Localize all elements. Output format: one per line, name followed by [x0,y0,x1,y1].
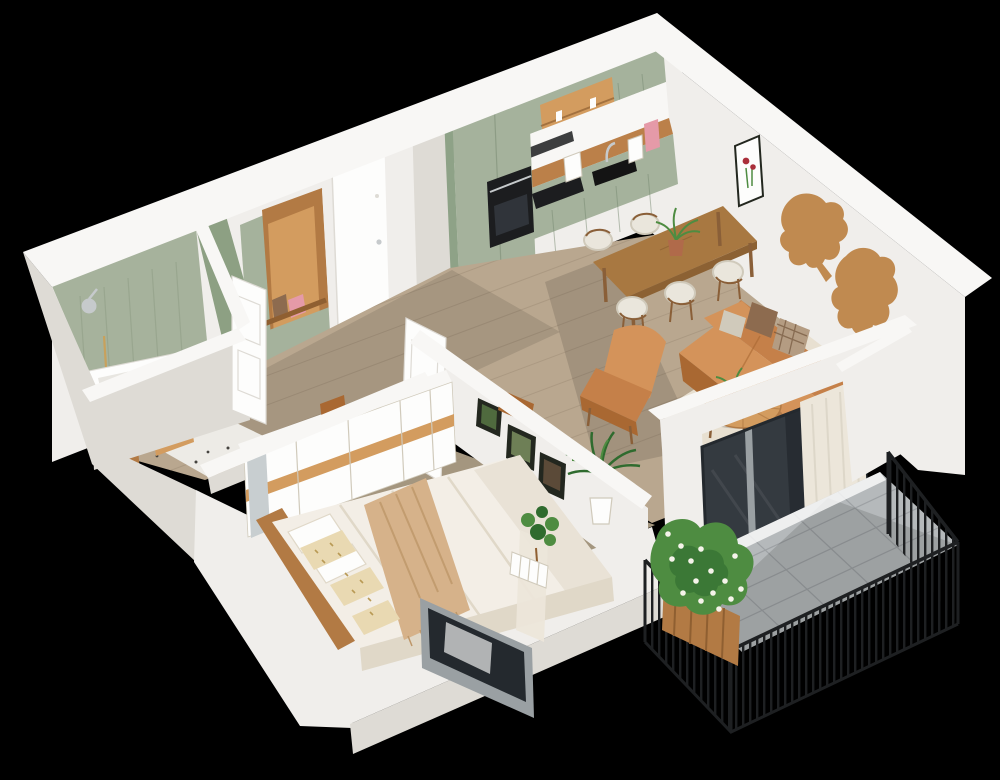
wardrobe-top-face [238,370,452,456]
chair-seat [631,214,659,234]
coffee-plant-pot [729,392,742,402]
daisy [669,556,675,562]
daisy-planter [650,519,753,666]
tile-lines [676,487,940,632]
kettle [628,135,643,163]
sliding-glass-door [702,385,868,588]
entry-wall-segment [322,179,356,332]
plant-leaves [656,208,700,240]
white-pillow-1 [288,514,344,553]
sofa-chaise [806,420,876,479]
dining-table-edge [627,241,757,305]
palm-fronds-light [572,440,608,474]
sofa-back [719,300,868,420]
daisy [722,578,728,584]
bathroom-wall-tile-lines [80,262,184,418]
gallery-photo-3 [543,459,561,491]
daisy [688,558,694,564]
base-cabinets [461,134,678,265]
built-in-oven [487,166,534,248]
bedroom-west-outer-wall [194,490,360,728]
back-walls [52,35,965,475]
patterned-pillow-3 [352,600,400,635]
balcony-shadow [706,498,958,652]
tall-cabinet-split [494,98,502,290]
balcony-doorway [660,324,922,604]
daisy [716,606,722,612]
dining-chair-front-1 [617,297,647,337]
gallery-frame-3 [538,452,566,500]
leather-sofa [679,300,878,498]
pillar-left-face [384,118,418,342]
speckle [149,431,152,434]
niche-green-base [264,306,336,382]
railing-panel-left [645,560,731,732]
outer-walls [23,252,671,754]
dining-chair-front-2 [665,282,695,322]
curtain-folds [812,386,860,528]
duvet-folds [340,477,536,630]
bedroom-floor [246,450,655,645]
gallery-frame-2 [506,424,536,471]
crate-slats [674,586,724,658]
bathroom-front-wall-top [82,328,246,402]
west-outer-wall [23,252,200,562]
main-floor-planks [70,188,890,580]
door-lintel-top [648,315,917,420]
bedroom-curtain [516,530,548,642]
bedroom-door [401,318,446,482]
bed-duvet [272,455,612,648]
tall-cabinet-block [452,82,536,302]
hall-bedroom-wall-face [208,385,436,494]
wardrobe-wood-stripe [246,414,454,502]
shower-head [82,299,97,314]
chair-seat [617,297,647,319]
bedroom-front-wall-top [333,527,668,724]
coffee-table-shadow [703,403,783,429]
bathroom-partition-top [196,225,250,330]
patterned-pillows [300,530,400,635]
plaid-pillow [772,318,810,360]
east-wall-top [635,13,992,297]
plank-lines [70,188,890,580]
speckle [188,436,191,439]
bathtub-rim [84,344,242,444]
speckle [227,447,230,450]
daisy [693,578,699,584]
daisies [665,531,744,612]
plant-trunk [536,548,538,575]
speckle [195,461,198,464]
coffee-table-plant [716,368,756,392]
throw-folds [380,487,452,598]
bag-on-wardrobe [320,395,346,421]
railing-panel-front [731,542,958,732]
sofa-chaise-front [838,444,878,498]
planter-crate [662,580,740,666]
balcony-tile-grid [676,487,958,652]
chair-back [633,214,657,220]
chair-back [716,277,742,283]
gallery-photo-1 [481,404,497,430]
bedroom-living-wall-face [428,346,648,586]
slat-lines [519,556,539,585]
living-dining [566,206,908,524]
railing-panel-right [888,452,958,624]
wardrobe-front [244,382,456,537]
bathroom-front-wall-hall-face [90,340,250,470]
balcony [645,452,958,732]
daisy-foliage-dark [669,546,728,597]
palm-fronds [566,432,640,474]
daisy-foliage [650,519,753,615]
railing-bottom-rail [645,624,958,732]
leather-wall-pocket [498,390,534,424]
beige-pillow [719,310,746,338]
speckle [167,443,170,446]
leaf [521,513,535,527]
table-legs [604,212,752,332]
corner-pier-face [842,332,922,482]
fiddle-leaf-plant [510,506,559,588]
chair-back [668,298,694,304]
artwork-frame [735,136,763,206]
hall-floor-shadow [130,270,560,452]
daisy [698,598,704,604]
bed-front-face [360,577,614,671]
bed-headboard [256,508,364,650]
throw-fringe [408,612,460,646]
bedroom-furniture [238,370,614,718]
bedroom-window-frame [420,598,534,718]
plant-pot [668,240,684,256]
main-wood-floor [92,232,908,523]
pillow-pattern-dots [315,543,373,615]
north-wall-face [52,40,682,462]
patterned-pillow-1 [300,530,356,570]
dining-chair-end [713,261,743,301]
bedroom-plank-lines [230,369,760,605]
range-hood-slot [528,131,574,158]
kitchen-sink [592,157,637,186]
chair-seat [584,230,612,250]
daisy [678,543,684,549]
sofa-cushion-seams [742,336,804,402]
bathroom [46,216,258,426]
north-wall-top [23,13,688,287]
leaf [545,517,559,531]
kitchen-upper-cabinets [449,34,666,163]
vanity-wood [96,434,140,472]
table-plant [656,208,700,256]
east-wall-face [635,35,965,475]
bathroom-door-panels [238,296,260,399]
gold-speckle [177,429,179,431]
duvet-shade [474,455,612,592]
wall-top-bands [23,13,992,509]
door-mullion [745,429,757,569]
glass-door-frame [702,385,868,588]
dining-floor-shadow [545,256,700,470]
gallery-frame-1 [476,398,502,437]
backsplash [454,82,669,199]
railing-posts [645,452,958,732]
bathroom-green-wall [46,228,212,426]
coffee-table-legs [710,416,776,450]
chair-back [586,230,610,236]
front-door [332,150,392,326]
living-curtain [800,378,868,540]
faucet [607,143,615,162]
gold-shower-pole [104,336,108,398]
speckle [156,455,159,458]
pillar-top-face [384,118,450,143]
armchair-seat [580,368,652,422]
chair-back [620,313,646,319]
daisy [698,546,704,552]
daisy [680,590,686,596]
chair-legs [622,315,644,337]
bathroom-green-wall-shaded [196,216,258,346]
chair-legs [718,279,740,301]
kitchen-top-wood-band [444,20,664,115]
bathtub-interior [98,354,228,430]
leaf [530,524,546,540]
entry-area [240,118,452,382]
red-flower [743,158,750,165]
speckle [207,451,210,454]
front-door-peephole [375,194,379,198]
bedroom-living-wall-top [410,330,652,509]
niche-bench-edge [264,300,326,324]
door-track [706,512,868,590]
armchair-front [580,396,638,436]
bench-plant [167,415,177,425]
black-background [0,0,1000,780]
table-segments [706,382,780,428]
daisy [708,568,714,574]
leaf [544,534,556,546]
daisy [728,596,734,602]
balcony-threshold [660,472,886,585]
glass-reflection [712,455,783,540]
patterned-pillow-2 [330,567,384,606]
world-map-central-america [816,258,832,282]
hall-bedroom-wall-top [200,372,433,478]
railing-top-rail [645,452,958,650]
plaid-lines [774,320,807,354]
armchair-back [600,325,666,401]
wardrobe-door-lines [296,390,434,519]
interior-walls [90,276,648,586]
brown-pillow [745,302,778,338]
red-flower [750,164,756,170]
armchair-legs [588,408,632,444]
daisy [732,553,738,559]
entry-niche-frame [262,188,330,352]
chair-legs [670,300,692,322]
corner-pier-top [836,324,912,372]
area-rug [658,326,908,508]
coffee-table [703,368,783,450]
entry-niche-interior [268,206,320,338]
door-lintel-face [660,325,919,449]
wardrobe-mirror-door [247,452,270,538]
palm-pot [590,498,612,524]
world-map-australia [881,330,892,338]
sofa-seat [679,323,846,453]
bathroom-door [232,276,266,424]
base-cabinet-lines [520,174,652,268]
shelf-cups [556,97,596,122]
floor-plan-render [0,0,1000,780]
bedroom-door-panels [408,340,438,462]
shelf-divider [541,98,614,126]
sofa-armrest [704,301,760,335]
bathroom-bench [152,414,194,456]
apartment-isometric-scene [0,0,1000,780]
terrazzo-speckles [149,429,236,464]
leaf [536,506,548,518]
bedroom-floor-planks [230,369,760,605]
flower-stems [746,166,752,188]
potted-palm [566,432,640,524]
window-curtain-reflection [444,622,492,674]
front-door-handle [376,239,381,244]
plant-slat-box [510,552,548,588]
floors [70,188,908,645]
white-pillow-2 [312,544,366,583]
world-map-north-america [780,194,848,268]
toilet-paper-roll [114,380,122,388]
coffee-table-top [705,382,781,428]
glass-dark-panel [785,385,868,552]
daisy [665,531,671,537]
daisy [710,590,716,596]
oven-window [494,194,529,236]
chair-seat [665,282,695,304]
coffee-machine [644,119,660,152]
entry-green-cabinet [240,215,274,368]
wall-stub-left-of-door [662,433,708,604]
pink-bag [288,294,306,318]
daisy [738,586,744,592]
oven-handle [490,176,531,192]
brown-bag [272,294,288,318]
lounge-armchair [580,325,666,444]
counter-top [457,118,673,215]
gold-speckle [233,459,236,462]
pillar-right-face [412,118,452,330]
rice-cooker [564,152,582,182]
world-map-eurasia-africa [831,248,897,335]
gallery-photo-2 [511,431,531,463]
dining-table-top [593,206,757,297]
chair-seat [713,261,743,283]
bathroom-fixtures [84,344,242,472]
terrazzo-floor [108,394,276,478]
bedroom-window-glass [428,608,526,702]
sofa-front [679,353,810,481]
dining-chair-back-1 [584,230,612,250]
black-basin [94,402,142,450]
shower-arm [89,289,97,299]
dining-chair-back-2 [631,214,659,234]
upper-cabinet-lines [480,74,646,172]
kitchen [444,20,678,306]
open-wood-shelf [540,77,616,149]
induction-cooktop [532,176,584,209]
throw-blanket [364,478,470,640]
bedroom-front-wall-outer-face [350,584,671,754]
tall-cabinet-side [444,112,460,306]
balcony-tile-floor [660,472,958,652]
table-seam [660,236,692,250]
